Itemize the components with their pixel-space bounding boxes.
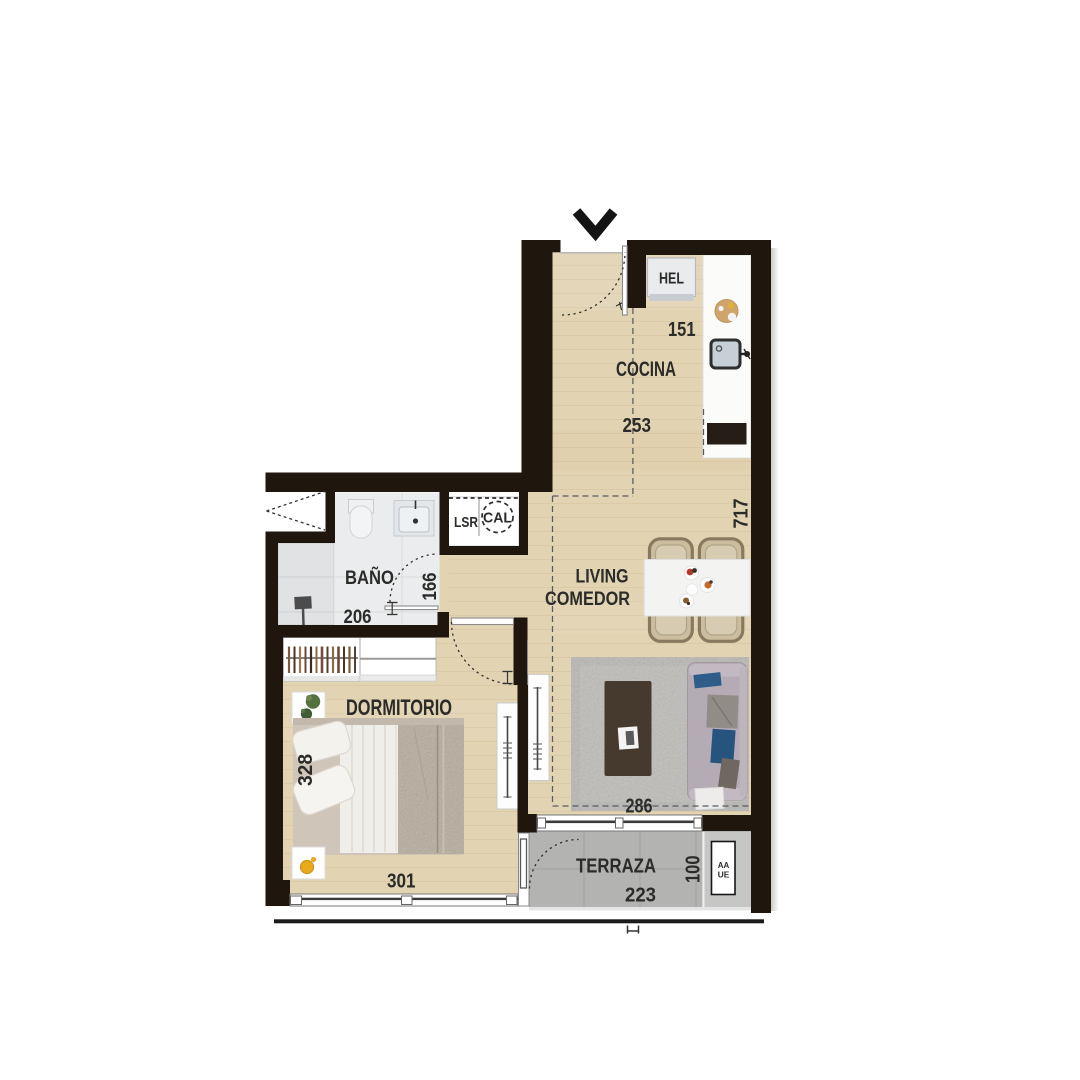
svg-text:LSR: LSR [454, 514, 478, 531]
svg-text:253: 253 [623, 415, 652, 437]
svg-text:HEL: HEL [659, 271, 684, 288]
svg-text:166: 166 [419, 572, 441, 600]
svg-text:301: 301 [387, 871, 416, 893]
svg-text:151: 151 [668, 319, 696, 341]
svg-text:TERRAZA: TERRAZA [576, 855, 656, 878]
svg-text:328: 328 [294, 754, 317, 786]
svg-text:COMEDOR: COMEDOR [545, 589, 630, 610]
svg-text:CAL: CAL [483, 510, 512, 527]
svg-text:286: 286 [626, 796, 653, 818]
svg-text:BAÑO: BAÑO [345, 566, 394, 589]
svg-text:223: 223 [625, 885, 656, 907]
svg-text:717: 717 [731, 499, 753, 529]
svg-text:100: 100 [683, 856, 705, 884]
svg-text:LIVING: LIVING [576, 567, 629, 588]
svg-text:UE: UE [718, 870, 730, 880]
svg-text:AA: AA [718, 860, 730, 870]
svg-text:DORMITORIO: DORMITORIO [346, 695, 452, 720]
svg-text:206: 206 [344, 606, 372, 628]
svg-text:COCINA: COCINA [616, 358, 676, 381]
